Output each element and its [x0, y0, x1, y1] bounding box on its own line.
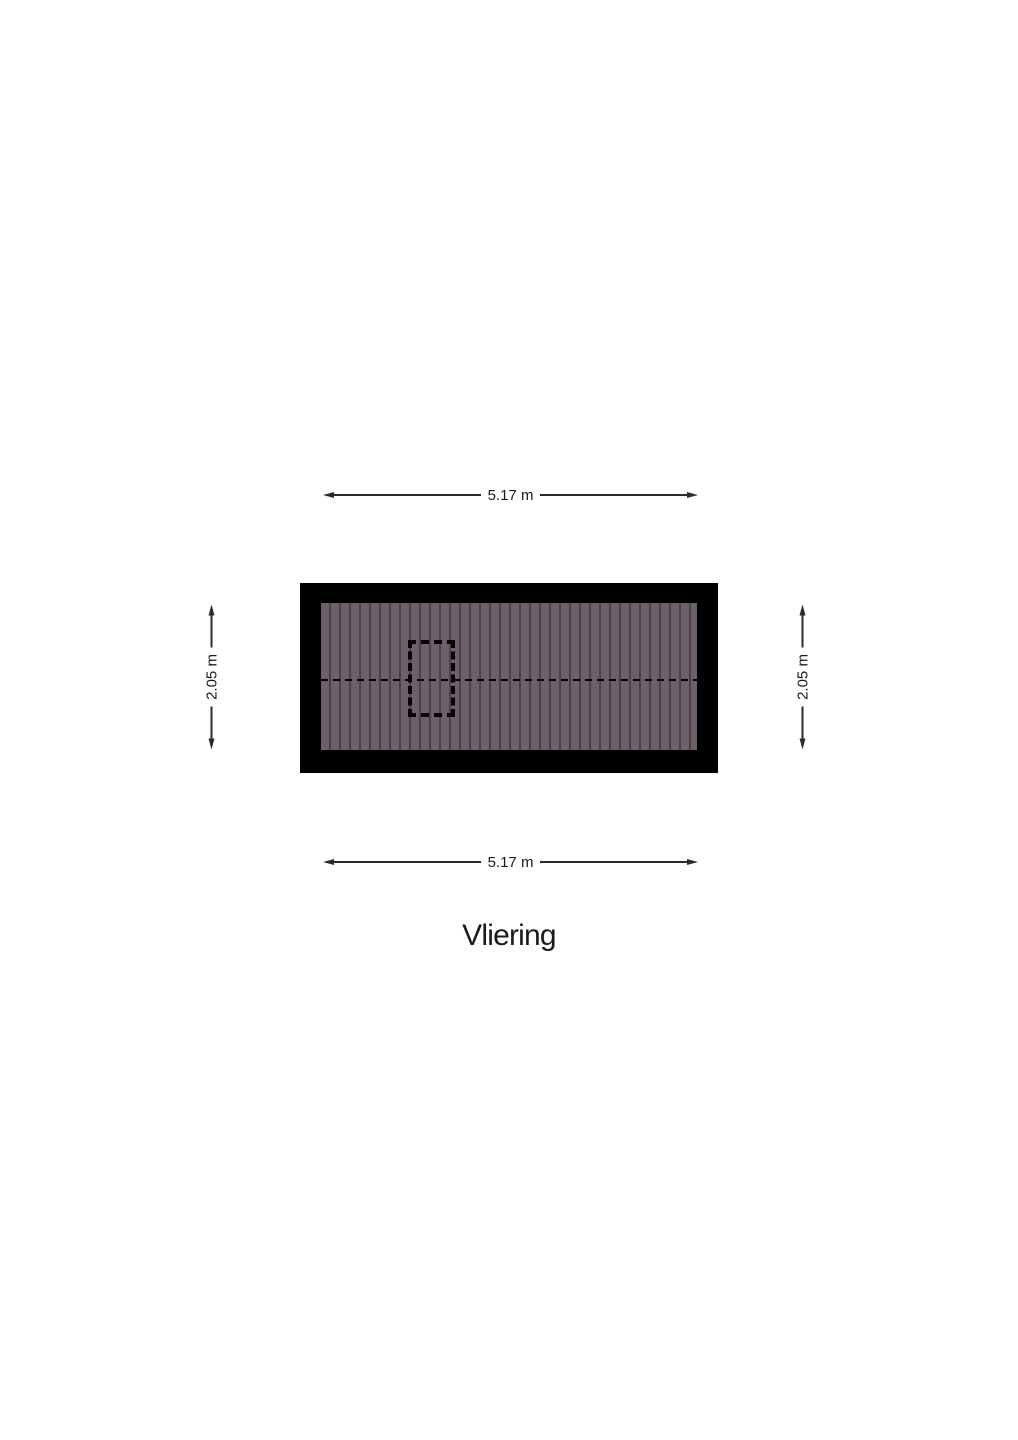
dimension-line [802, 707, 804, 739]
arrow-left-icon [323, 859, 334, 865]
arrow-down-icon [800, 739, 806, 750]
dimension-top: 5.17 m [323, 487, 698, 503]
room-outline-walls [300, 583, 718, 773]
dimension-right: 2.05 m [795, 605, 811, 750]
dimension-label: 5.17 m [481, 855, 541, 870]
arrow-right-icon [687, 859, 698, 865]
dimension-bottom: 5.17 m [323, 854, 698, 870]
dimension-line [211, 707, 213, 739]
arrow-up-icon [209, 604, 215, 615]
arrow-right-icon [687, 492, 698, 498]
dimension-label: 5.17 m [481, 488, 541, 503]
dimension-line [334, 861, 481, 863]
arrow-down-icon [209, 739, 215, 750]
hatch-opening-dashed [408, 640, 455, 717]
plank-floor [321, 603, 697, 750]
ridge-dashed-line [321, 679, 697, 681]
dimension-label: 2.05 m [795, 647, 810, 707]
arrow-left-icon [323, 492, 334, 498]
dimension-line [211, 615, 213, 647]
dimension-line [540, 861, 687, 863]
dimension-line [802, 615, 804, 647]
floorplan-canvas: 5.17 m 2.05 m 2.05 m 5.17 m Vliering [0, 0, 1018, 1440]
arrow-up-icon [800, 604, 806, 615]
dimension-line [540, 494, 687, 496]
room-title: Vliering [0, 919, 1018, 952]
dimension-line [334, 494, 481, 496]
dimension-left: 2.05 m [204, 605, 220, 750]
dimension-label: 2.05 m [204, 647, 219, 707]
